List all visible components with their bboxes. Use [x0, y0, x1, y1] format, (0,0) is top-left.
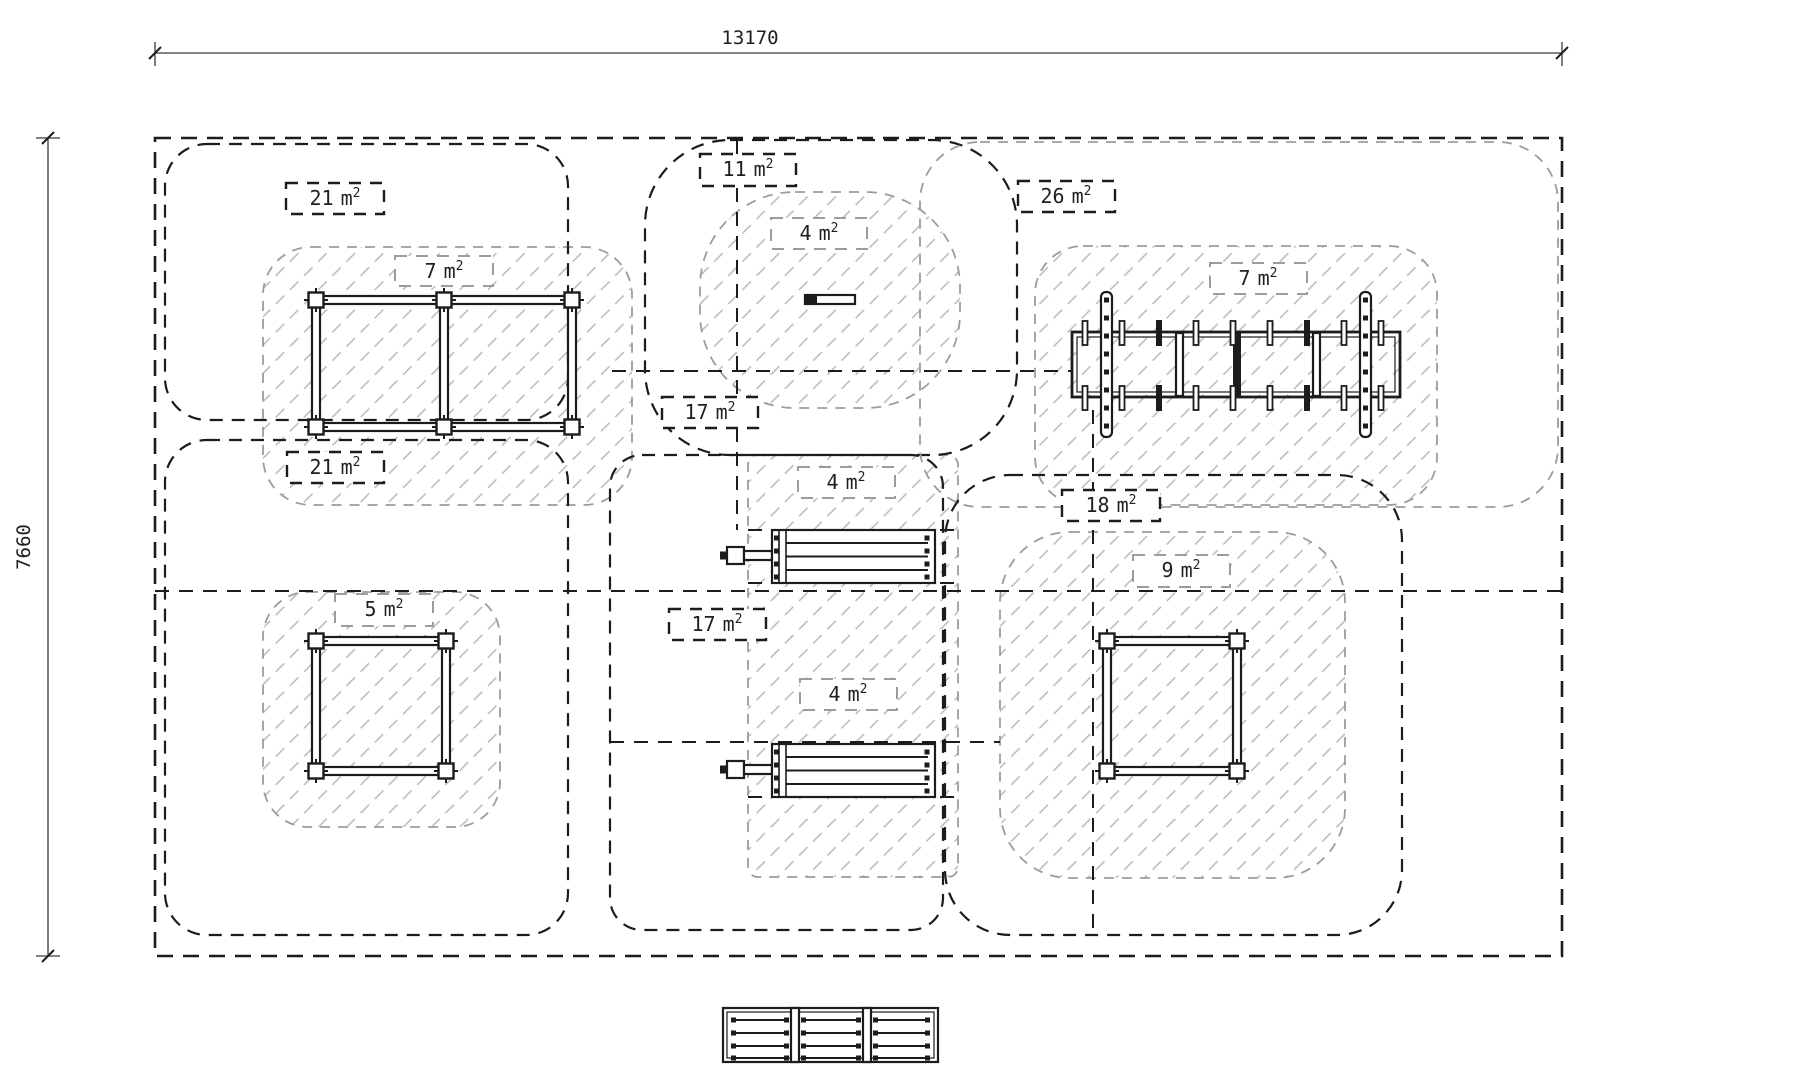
- area-label-21-bottom-left: 21m2: [287, 452, 384, 483]
- equipment-fence-elevation: [723, 1008, 938, 1062]
- equipment-balance-bar: [805, 295, 855, 304]
- dimension-extension-ticks-top: [155, 42, 1562, 66]
- area-label-17-lower: 17m2: [669, 609, 766, 640]
- area-label-box: [1062, 490, 1160, 521]
- area-label-box: [286, 183, 384, 214]
- area-label-4-top-center: 4m2: [771, 218, 867, 249]
- dimension-top: 13170: [149, 27, 1568, 66]
- dimension-value-top: 13170: [721, 27, 778, 49]
- impact-area-hatch-center-column: [748, 455, 958, 877]
- playground-plan-page: 21m2 7m2 11m2 4m2 26m2 7m2 17m2 21m2: [0, 0, 1801, 1080]
- impact-area-hatch-bottom-left: [263, 592, 500, 827]
- area-label-box: [700, 154, 796, 186]
- dimension-value-left: 7660: [13, 524, 35, 570]
- dimension-left: 7660: [13, 132, 60, 962]
- site-plan-drawing: 21m2 7m2 11m2 4m2 26m2 7m2 17m2 21m2: [0, 0, 1801, 1080]
- area-label-5-bottom-left: 5m2: [335, 594, 433, 626]
- area-label-9-bottom-right: 9m2: [1133, 555, 1230, 587]
- area-label-17-upper: 17m2: [662, 397, 758, 428]
- area-label-26-top-right: 26m2: [1018, 181, 1115, 212]
- area-label-4-bench-lower: 4m2: [800, 679, 897, 710]
- area-label-box: [1018, 181, 1115, 212]
- area-label-box: [669, 609, 766, 640]
- area-label-21-top-left: 21m2: [286, 183, 384, 214]
- area-label-box: [287, 452, 384, 483]
- area-label-11-top-center: 11m2: [700, 154, 796, 186]
- area-label-18-bottom-right: 18m2: [1062, 490, 1160, 521]
- area-label-4-bench-upper: 4m2: [798, 467, 895, 498]
- area-label-7-top-left: 7m2: [395, 256, 493, 286]
- area-label-box: [662, 397, 758, 428]
- area-label-7-top-right: 7m2: [1210, 263, 1307, 294]
